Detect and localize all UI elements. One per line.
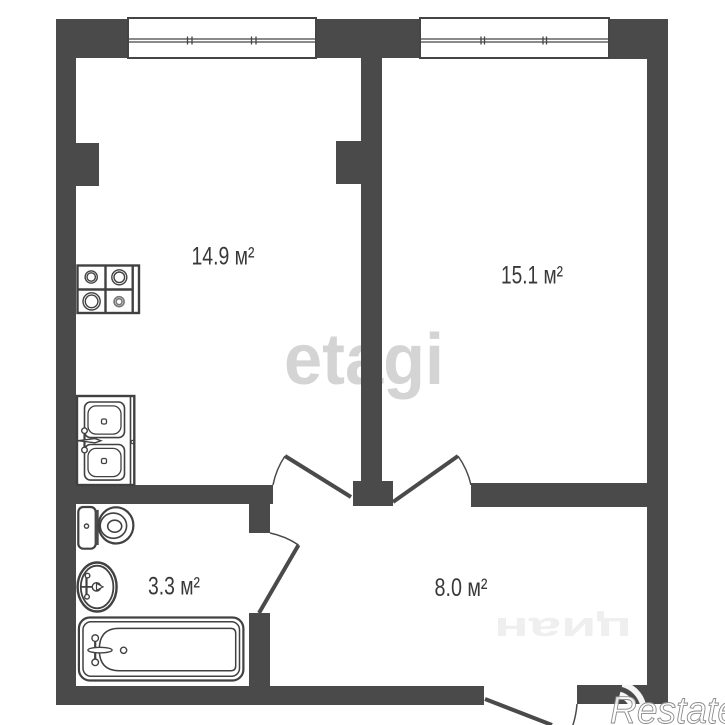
svg-text:3.3 м²: 3.3 м² [148,573,200,601]
svg-text:8.0 м²: 8.0 м² [435,574,488,602]
svg-text:14.9 м²: 14.9 м² [192,243,255,271]
svg-text:15.1 м²: 15.1 м² [501,262,563,290]
svg-text:циан: циан [494,610,632,648]
svg-text:Restate: Restate [610,690,725,725]
